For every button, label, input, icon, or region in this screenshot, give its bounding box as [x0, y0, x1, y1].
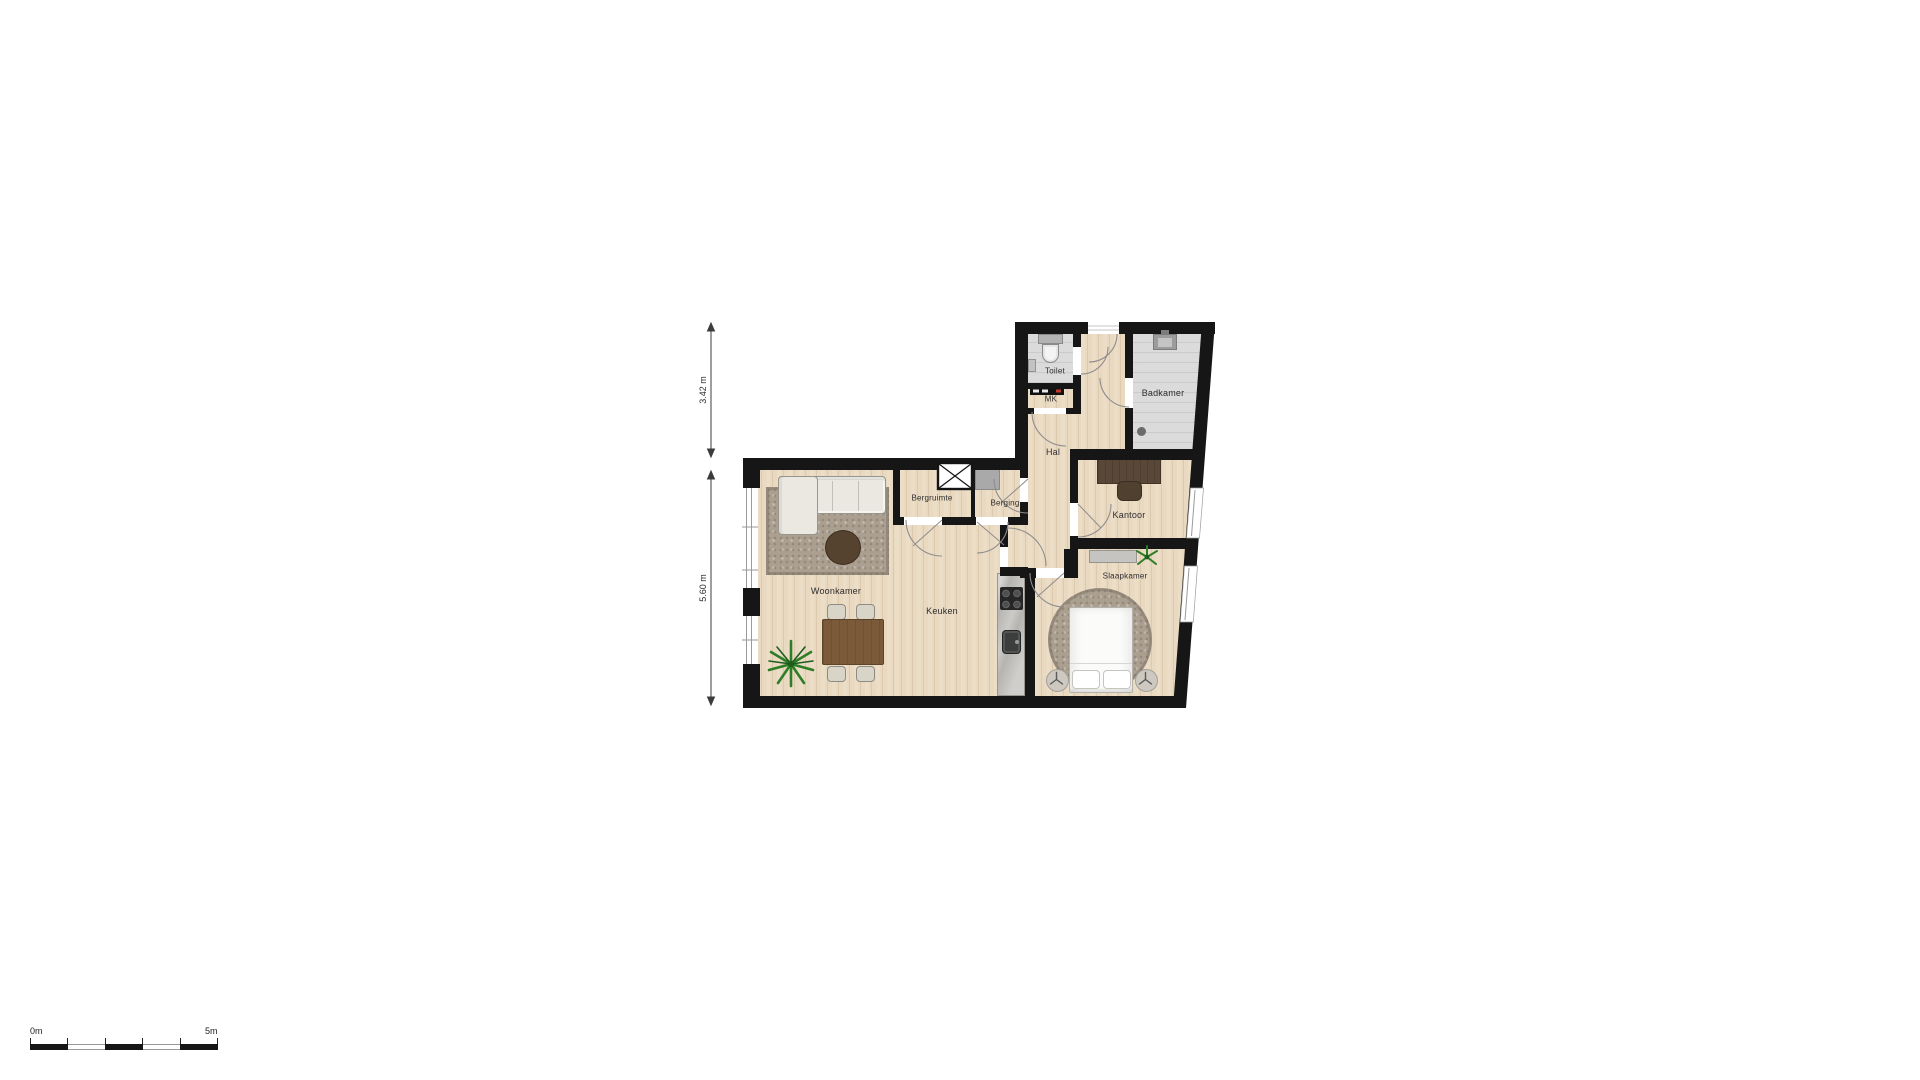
room-label-bergruimte: Bergruimte [911, 494, 952, 503]
dimension-arrow [708, 323, 715, 705]
coffee-table [825, 530, 861, 565]
door-opening-badkamer [1125, 378, 1133, 408]
wall [1020, 502, 1028, 517]
scale-segment [143, 1044, 180, 1050]
room-label-berging: Berging [991, 499, 1020, 508]
pillow [1103, 670, 1131, 689]
dining-chair [856, 666, 875, 682]
scale-label-start: 0m [30, 1026, 43, 1036]
wall [1000, 525, 1008, 547]
door-opening-slaapkamer [1036, 568, 1064, 578]
floor-hal-d [1008, 525, 1028, 568]
sink-icon [1002, 630, 1021, 654]
wall [1008, 517, 1028, 525]
floor-hal-a [1081, 333, 1125, 449]
wall [1125, 333, 1133, 378]
wardrobe [1089, 550, 1137, 563]
dining-chair [856, 604, 875, 620]
scale-label-end: 5m [205, 1026, 218, 1036]
door-opening-keuken [1000, 547, 1008, 567]
washbasin-icon [1028, 359, 1036, 372]
wall [1015, 322, 1028, 470]
wall [743, 458, 760, 488]
wall [1020, 470, 1028, 478]
desk-chair [1117, 481, 1142, 501]
toilet-bowl [1042, 344, 1059, 363]
sofa-chaise [778, 476, 818, 535]
dining-table [822, 619, 884, 665]
window [742, 488, 758, 588]
room-label-mk: MK [1045, 395, 1057, 404]
appliance [975, 469, 1000, 490]
scale-segment [30, 1044, 68, 1050]
wall [971, 470, 975, 517]
room-label-slaapkamer: Slaapkamer [1103, 572, 1148, 581]
wall [1070, 449, 1198, 460]
wall [1070, 538, 1190, 549]
door-opening-entry [1088, 322, 1119, 334]
drain-icon [1137, 427, 1146, 436]
floorplan-page: Toilet MK Hal Badkamer Bergruimte Bergin… [0, 0, 1920, 1080]
wall [1000, 567, 1028, 576]
wall [1025, 568, 1035, 696]
wall [743, 588, 760, 616]
dining-chair [827, 604, 846, 620]
nightstand [1046, 669, 1069, 692]
wall [1064, 549, 1078, 578]
window [742, 616, 758, 664]
room-label-hal: Hal [1046, 447, 1060, 457]
door-opening-bergruimte [904, 517, 942, 525]
sofa-cushion-seam [858, 481, 859, 511]
wall [1070, 460, 1078, 503]
bed-fold-line [1070, 663, 1132, 664]
wall [743, 696, 1179, 708]
dining-chair [827, 666, 846, 682]
scale-bar [30, 1038, 218, 1052]
dimension-label: 3.42 m [698, 376, 708, 404]
wall [893, 470, 900, 517]
toilet-icon [1038, 334, 1063, 344]
dimension-label: 5.60 m [698, 574, 708, 602]
door-opening-mk [1034, 408, 1066, 414]
nightstand [1135, 669, 1158, 692]
shower-head-inner [1158, 338, 1172, 347]
wall [743, 458, 1028, 470]
wall [1066, 408, 1081, 414]
door-opening-berging-hal [1020, 478, 1028, 502]
room-label-toilet: Toilet [1045, 367, 1065, 376]
door-opening-kantoor [1070, 503, 1078, 536]
wall [1073, 375, 1081, 383]
room-label-woonkamer: Woonkamer [811, 586, 861, 596]
door-opening-berging-keuken [976, 517, 1008, 525]
wall [1073, 333, 1081, 347]
stove-icon [1000, 587, 1023, 610]
floor-hal-b [1028, 413, 1081, 449]
sofa-cushion-seam [832, 481, 833, 511]
wall [942, 517, 976, 525]
room-label-keuken: Keuken [926, 606, 958, 616]
room-label-badkamer: Badkamer [1142, 388, 1185, 398]
door-opening-toilet [1073, 347, 1081, 375]
room-label-kantoor: Kantoor [1113, 510, 1146, 520]
wall [893, 517, 904, 525]
pillow [1072, 670, 1100, 689]
scale-segment [68, 1044, 105, 1050]
scale-segment [105, 1044, 143, 1050]
scale-segment [180, 1044, 218, 1050]
